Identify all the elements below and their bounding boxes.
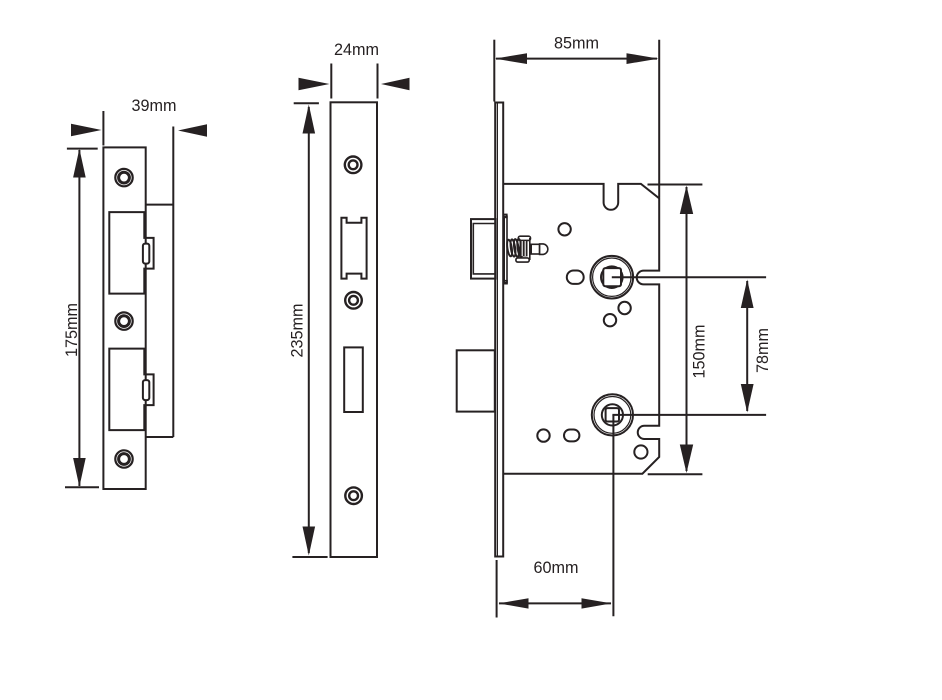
svg-text:39mm: 39mm bbox=[132, 97, 177, 115]
svg-text:78mm: 78mm bbox=[754, 328, 772, 373]
svg-text:85mm: 85mm bbox=[554, 35, 599, 53]
svg-text:24mm: 24mm bbox=[334, 41, 379, 59]
svg-text:235mm: 235mm bbox=[288, 304, 306, 358]
svg-text:150mm: 150mm bbox=[691, 325, 709, 379]
svg-text:60mm: 60mm bbox=[534, 559, 579, 577]
svg-text:175mm: 175mm bbox=[63, 303, 81, 357]
